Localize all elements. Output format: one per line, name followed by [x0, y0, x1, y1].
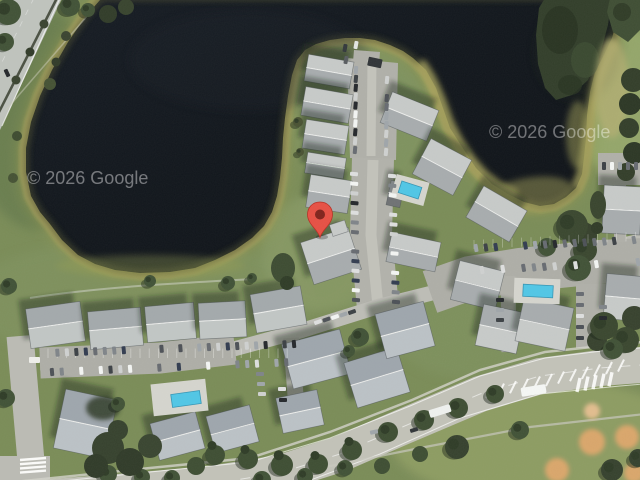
svg-text:© 2026 Google: © 2026 Google [489, 122, 610, 142]
svg-text:© 2026 Google: © 2026 Google [27, 168, 148, 188]
